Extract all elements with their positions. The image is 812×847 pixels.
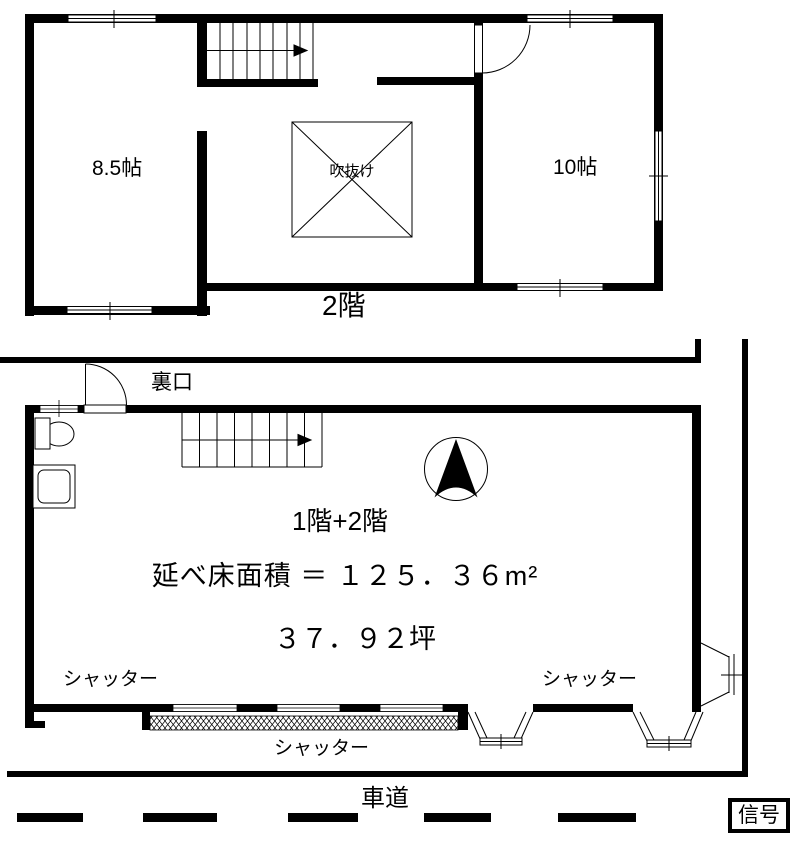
shutter-label-bottom: シャッター — [274, 739, 369, 758]
roadway-label: 車道 — [361, 787, 409, 811]
plan-linework — [0, 0, 812, 847]
traffic-signal-badge: 信号 — [728, 798, 790, 833]
floor1-top-window — [40, 400, 78, 417]
floor-plan-canvas: 8.5帖 10帖 吹抜け 2階 裏口 1階+2階 延べ床面積 ＝ １２５．３６m… — [0, 0, 812, 847]
north-arrow-icon — [425, 438, 488, 501]
bay-window-left-icon — [468, 712, 533, 749]
sink-icon — [33, 465, 75, 508]
shutter-label-left: シャッター — [63, 670, 158, 689]
floor2-title: 2階 — [322, 292, 366, 320]
floor1-bottom-windows — [173, 705, 443, 712]
room-size-left: 8.5帖 — [92, 158, 142, 179]
stairs-2f-icon — [207, 22, 313, 79]
shutter-label-right: シャッター — [542, 670, 637, 689]
toilet-icon — [35, 418, 74, 449]
back-entrance-label: 裏口 — [151, 372, 193, 393]
stairs-1f-icon — [182, 413, 322, 467]
traffic-signal-label: 信号 — [738, 805, 780, 826]
corner-bay-window-icon — [701, 643, 742, 706]
floors-label: 1階+2階 — [240, 508, 440, 534]
total-floor-area: 延べ床面積 ＝ １２５．３６m² — [110, 563, 580, 590]
back-door-icon — [84, 364, 127, 413]
road-center-dashes — [17, 813, 636, 822]
tsubo-area: ３７．９２坪 — [210, 626, 500, 653]
room-size-right: 10帖 — [553, 157, 597, 178]
void-label: 吹抜け — [322, 164, 382, 179]
bay-window-right-icon — [633, 712, 703, 751]
door-2f-icon — [475, 25, 531, 73]
